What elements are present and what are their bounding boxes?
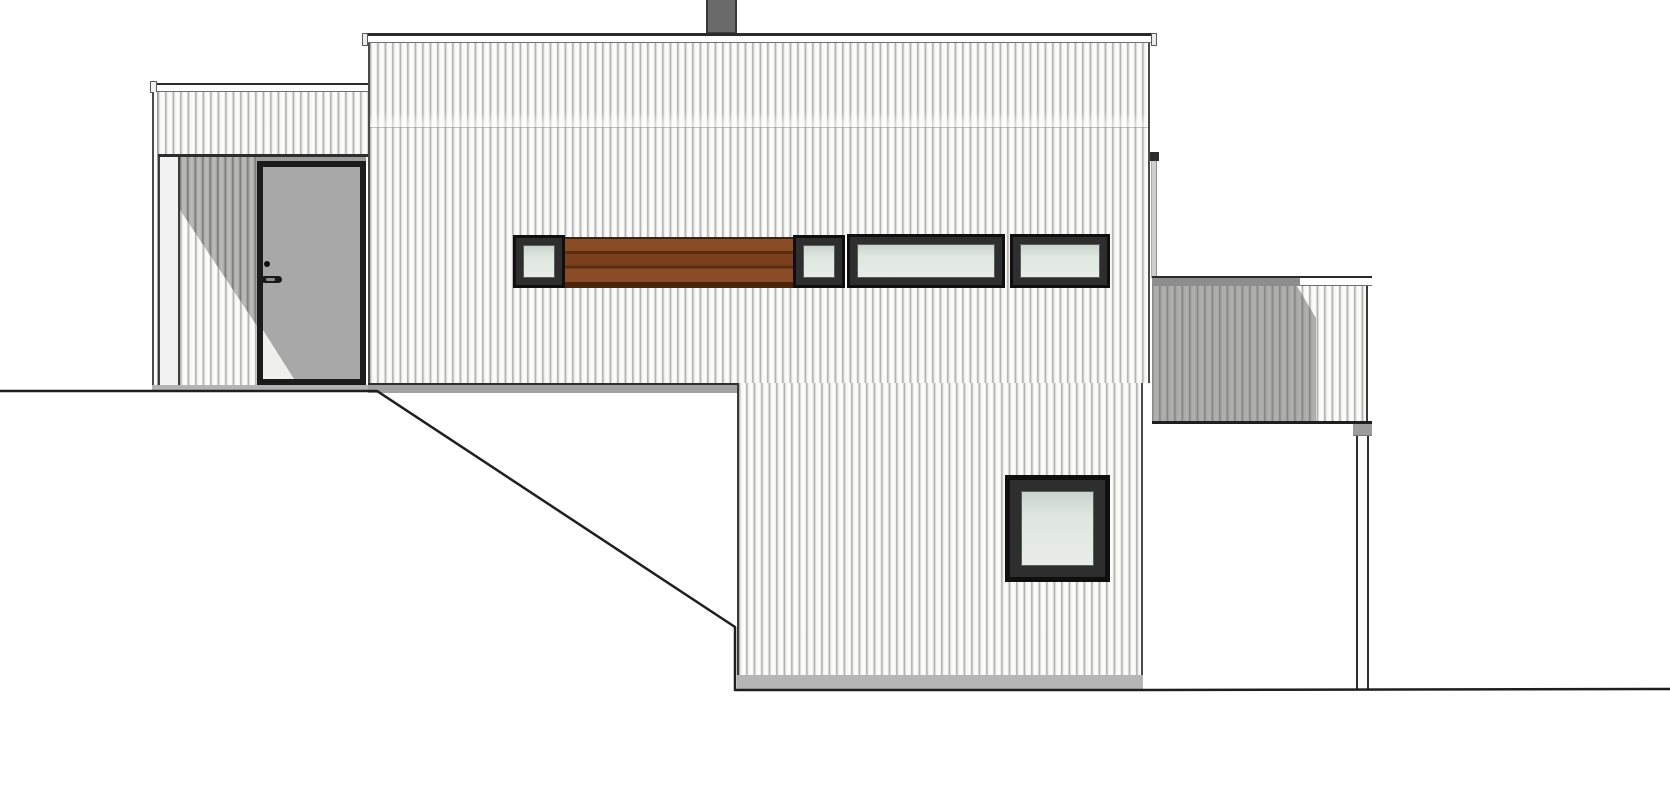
- annex-fascia-shadow: [1152, 278, 1300, 286]
- entry-door-leaf: [263, 167, 360, 379]
- entry-wing-cladding-band: [158, 92, 368, 154]
- main-foundation-band: [737, 675, 1143, 690]
- window-small-mid-glass: [803, 245, 835, 278]
- chimney: [706, 0, 737, 34]
- window-small-mid: [793, 235, 845, 288]
- annex-cast-shadow: [1152, 286, 1316, 421]
- window-small-left-glass: [523, 245, 555, 278]
- annex-bottom-edge: [1152, 421, 1372, 424]
- main-roof-fascia: [362, 33, 1157, 43]
- window-small-left: [513, 235, 565, 288]
- window-wide-strip: [847, 234, 1005, 288]
- terrace-post-cap: [1353, 424, 1372, 436]
- downspout-bracket: [1150, 152, 1159, 161]
- entry-wing-base-band: [152, 385, 368, 392]
- entry-wing-fascia: [150, 83, 368, 92]
- door-peephole-dot: [264, 261, 270, 267]
- terrace-post: [1356, 424, 1369, 690]
- main-roof-fascia-right-cap: [1151, 33, 1157, 46]
- wood-slat-panel: [565, 237, 793, 288]
- downspout: [1151, 156, 1157, 278]
- window-lower-square-glass: [1021, 491, 1094, 566]
- door-handle-highlight: [266, 278, 275, 281]
- main-facade-seam: [370, 112, 1148, 128]
- window-medium-strip-glass: [1020, 244, 1100, 278]
- main-upper-wall: [368, 43, 1150, 383]
- entry-recess-corner-post: [158, 157, 180, 385]
- window-wide-strip-glass: [857, 244, 995, 278]
- elevation-drawing-canvas: [0, 0, 1670, 800]
- window-medium-strip: [1010, 234, 1110, 288]
- cantilever-soffit-band: [368, 383, 737, 393]
- window-lower-square: [1005, 475, 1110, 582]
